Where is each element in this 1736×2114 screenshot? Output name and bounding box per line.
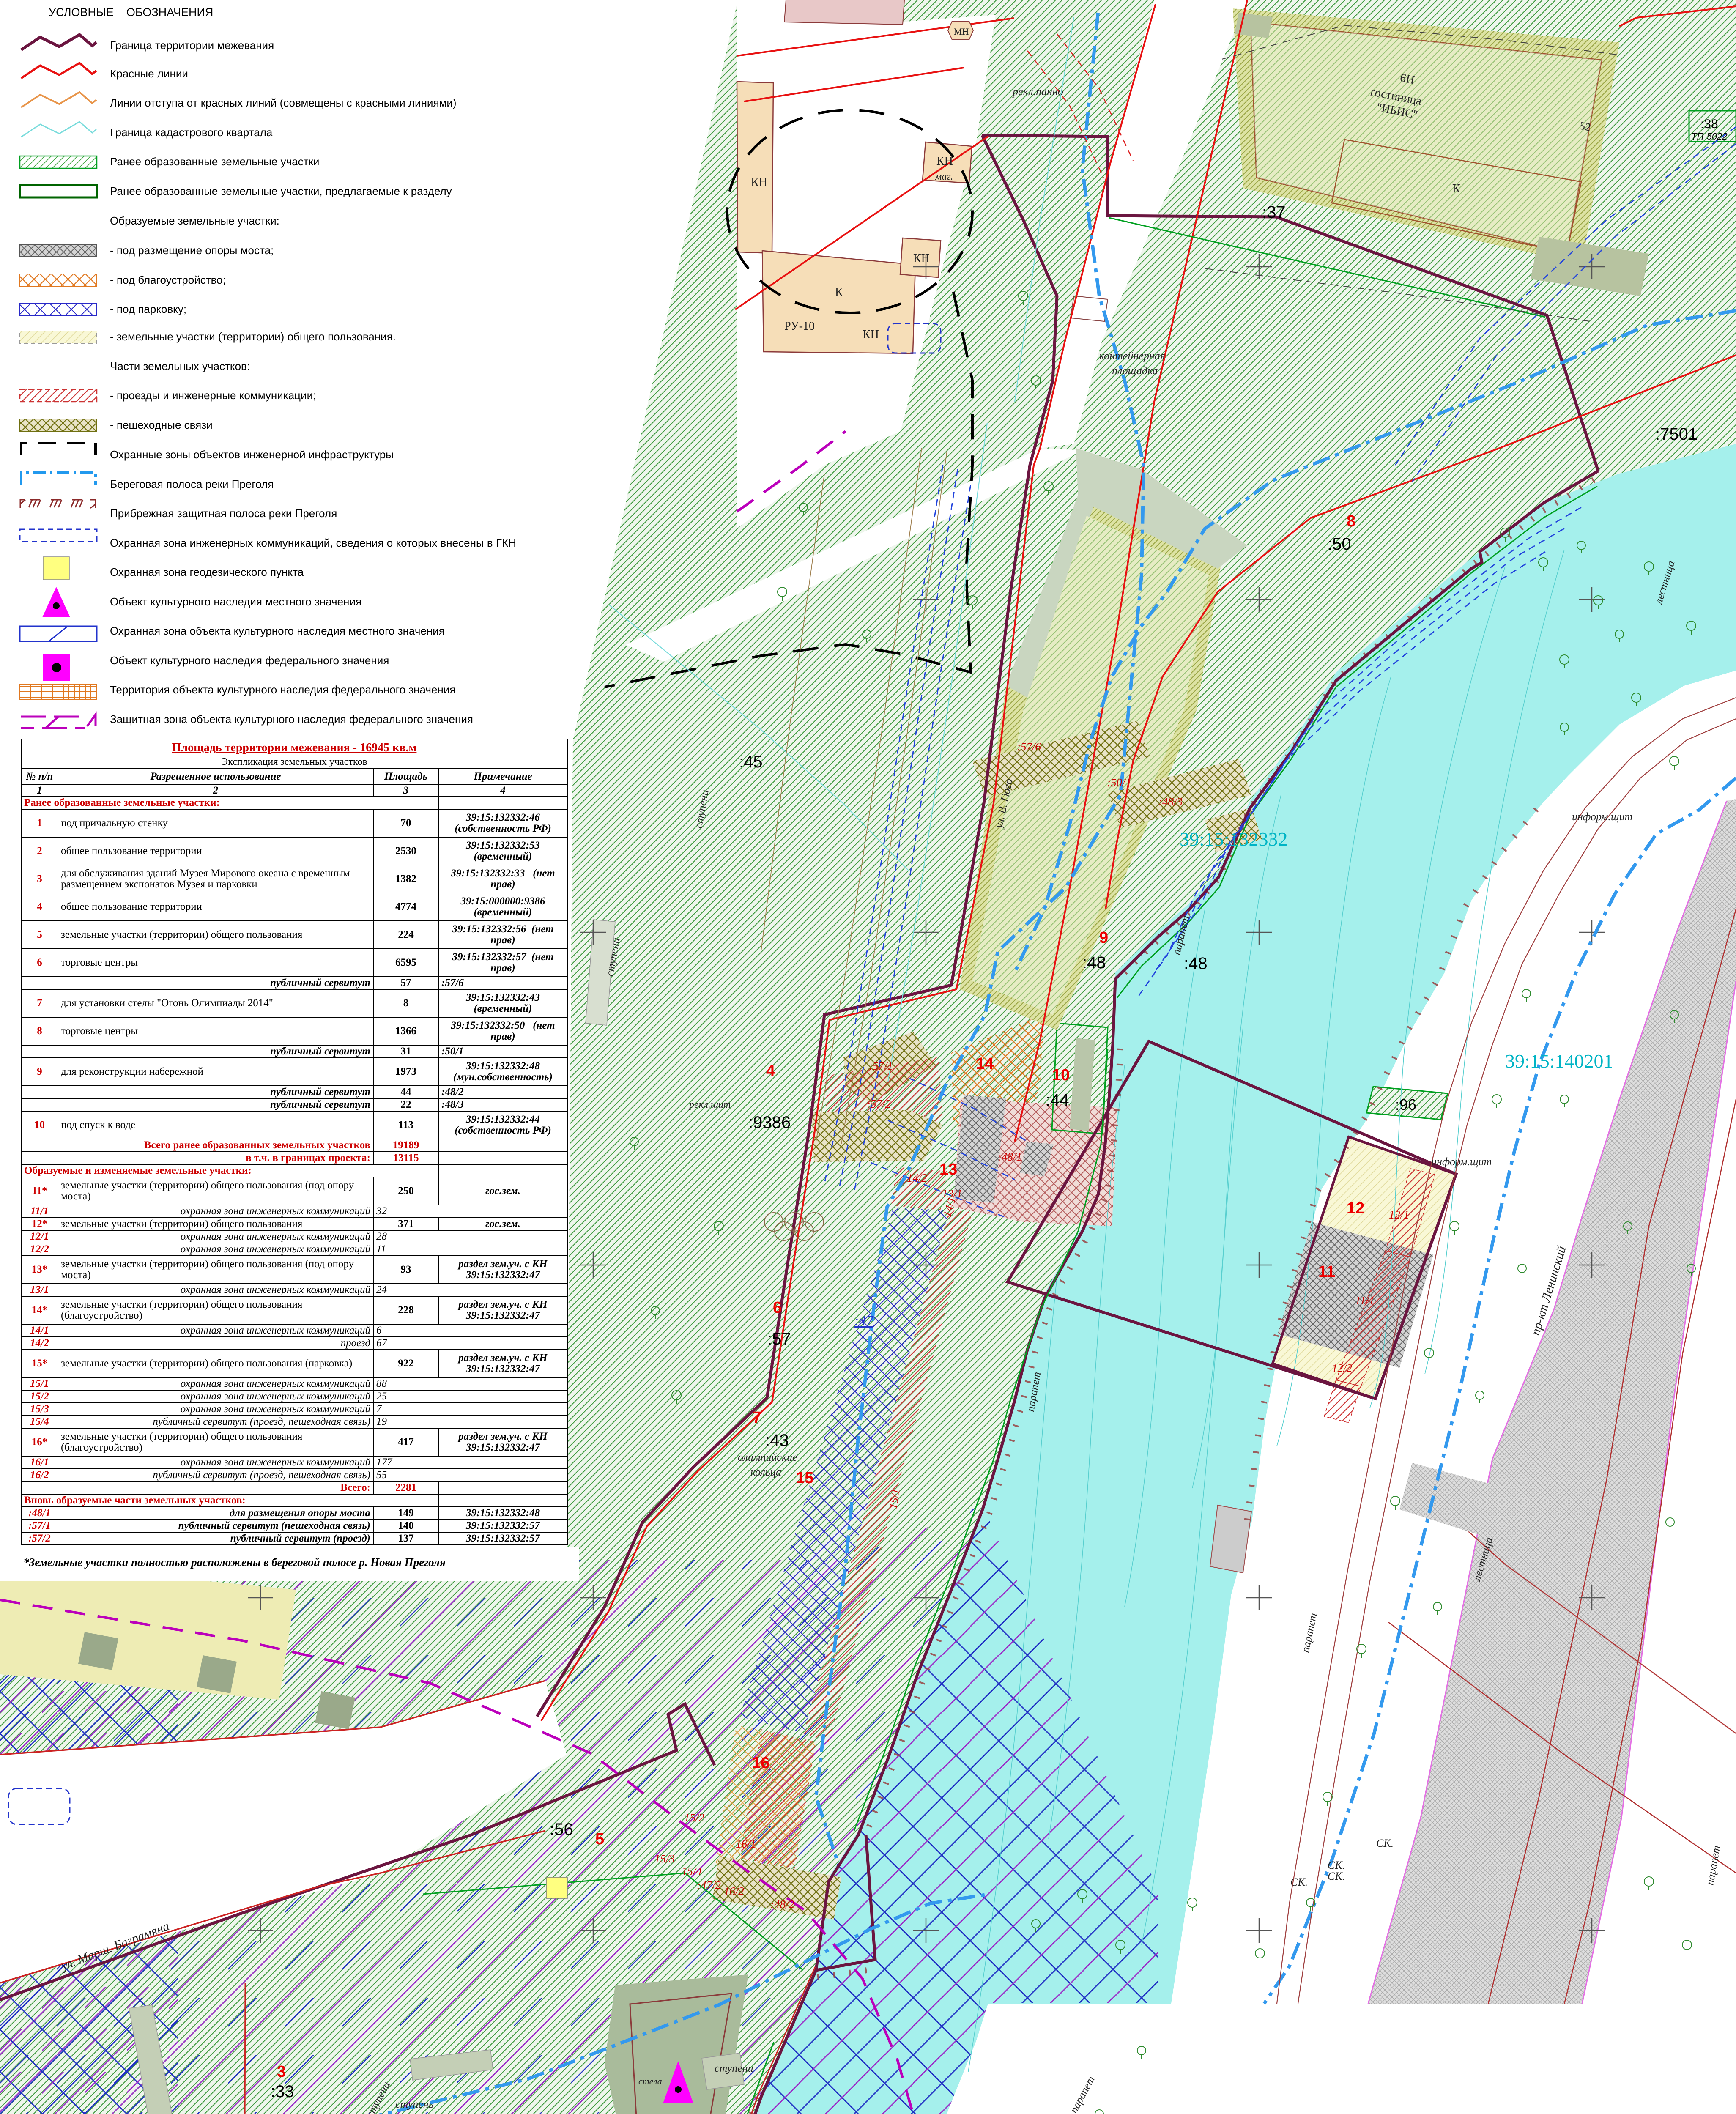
svg-text:6Н: 6Н (1399, 71, 1416, 87)
svg-text:контейнерная: контейнерная (1099, 350, 1165, 362)
svg-text:маг.: маг. (935, 171, 953, 182)
svg-text:К: К (835, 286, 843, 299)
svg-text::45: :45 (739, 753, 763, 771)
svg-text:кольца: кольца (750, 1466, 781, 1478)
svg-text::57/1: :57/1 (869, 1060, 893, 1072)
svg-text:КН: КН (863, 328, 879, 341)
svg-text::43: :43 (765, 1431, 789, 1450)
svg-text:52: 52 (1579, 119, 1592, 133)
svg-text:7: 7 (753, 1409, 761, 1427)
svg-text:5: 5 (595, 1830, 604, 1848)
svg-text:14: 14 (976, 1055, 994, 1073)
svg-text::48: :48 (1082, 953, 1106, 972)
svg-text::47/2: :47/2 (697, 1879, 721, 1892)
svg-text::44: :44 (1046, 1091, 1069, 1109)
svg-text:12: 12 (1347, 1199, 1364, 1217)
svg-text::37: :37 (1262, 203, 1286, 222)
svg-text:информ.щит: информ.щит (1431, 1156, 1492, 1168)
svg-text:КН: КН (751, 176, 767, 189)
svg-text:39:15:140201: 39:15:140201 (1505, 1050, 1613, 1072)
svg-text::48/1: :48/1 (998, 1150, 1022, 1163)
svg-text:6: 6 (773, 1299, 782, 1317)
svg-text:информ.щит: информ.щит (1572, 811, 1632, 823)
svg-text:16/2: 16/2 (724, 1885, 744, 1898)
svg-text:13: 13 (939, 1161, 957, 1178)
svg-text:МН: МН (954, 26, 969, 37)
svg-text:К: К (1452, 182, 1460, 195)
svg-text:10: 10 (1052, 1066, 1070, 1084)
svg-text:15/3: 15/3 (654, 1852, 675, 1865)
svg-text::57/2: :57/2 (867, 1098, 891, 1110)
svg-text::7501: :7501 (1655, 425, 1698, 444)
svg-text:рекл.панно: рекл.панно (1012, 85, 1063, 98)
svg-text:олимпийские: олимпийские (738, 1451, 797, 1463)
svg-text:16: 16 (752, 1754, 769, 1772)
svg-text:11: 11 (1318, 1263, 1335, 1281)
svg-text:39:15:132332: 39:15:132332 (1180, 828, 1288, 850)
svg-text::50/1: :50/1 (1107, 776, 1131, 789)
svg-text::57: :57 (767, 1330, 791, 1348)
svg-text::38: :38 (1700, 117, 1718, 131)
svg-text:рекл.щит: рекл.щит (688, 1099, 731, 1110)
svg-text:СК.: СК. (1376, 1837, 1394, 1849)
svg-text::57/6: :57/6 (1017, 740, 1041, 753)
svg-text:площадка: площадка (1112, 364, 1158, 377)
svg-text::9386: :9386 (748, 1113, 791, 1132)
svg-text:ТП-5022: ТП-5022 (1691, 131, 1728, 142)
svg-text:3: 3 (277, 2063, 286, 2081)
svg-text::48: :48 (1184, 954, 1208, 973)
svg-text:стела: стела (638, 2076, 662, 2087)
svg-text:СК.: СК. (1328, 1870, 1345, 1882)
svg-text::96: :96 (1395, 1096, 1416, 1113)
svg-text:ступень: ступень (395, 2098, 434, 2110)
svg-text:15/2: 15/2 (684, 1811, 704, 1824)
svg-text::56: :56 (550, 1820, 573, 1839)
svg-text:4: 4 (766, 1062, 775, 1080)
svg-text:15/4: 15/4 (682, 1865, 702, 1878)
svg-text::48/2: :48/2 (770, 1898, 794, 1911)
svg-text:СК.: СК. (1328, 1859, 1345, 1871)
svg-text:12/1: 12/1 (1389, 1208, 1409, 1221)
svg-text:16/1: 16/1 (736, 1837, 756, 1850)
svg-text:15: 15 (796, 1469, 813, 1487)
svg-text:11/1: 11/1 (1355, 1294, 1375, 1307)
svg-text:РУ-10: РУ-10 (784, 320, 815, 333)
svg-text:КН: КН (913, 252, 930, 265)
svg-text::48/3: :48/3 (1158, 795, 1183, 808)
svg-text:ступени: ступени (715, 2062, 753, 2074)
svg-text::47: :47 (854, 1313, 874, 1329)
svg-text::50: :50 (1328, 535, 1351, 553)
svg-text::33: :33 (271, 2082, 294, 2101)
svg-text:8: 8 (1347, 512, 1355, 530)
svg-text:СК.: СК. (1290, 1876, 1308, 1888)
svg-text:14/2: 14/2 (907, 1172, 927, 1184)
svg-text:12/2: 12/2 (1332, 1362, 1352, 1375)
svg-text:9: 9 (1099, 929, 1108, 947)
svg-text:КН: КН (936, 155, 953, 168)
